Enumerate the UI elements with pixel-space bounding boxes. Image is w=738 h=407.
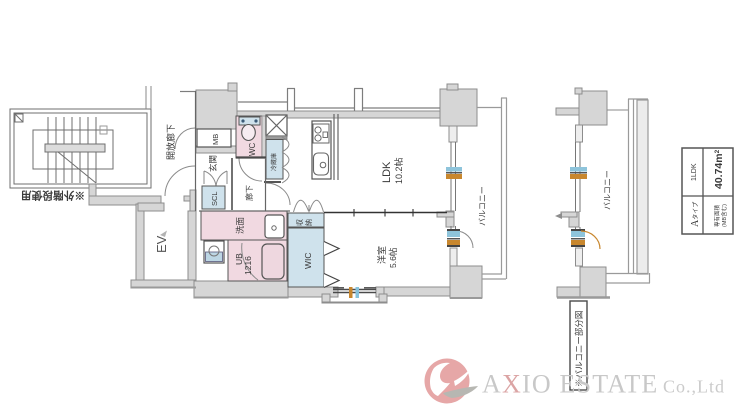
svg-text:1LDK: 1LDK bbox=[691, 163, 698, 181]
svg-text:洗面: 洗面 bbox=[235, 216, 245, 234]
svg-text:専有面積: 専有面積 bbox=[713, 204, 721, 227]
svg-text:※外階段使用: ※外階段使用 bbox=[21, 189, 85, 202]
svg-text:EV: EV bbox=[154, 235, 169, 253]
svg-text:WIC: WIC bbox=[303, 252, 313, 269]
svg-text:LDK: LDK bbox=[381, 161, 393, 183]
svg-text:40.74m2: 40.74m2 bbox=[713, 149, 725, 189]
svg-text:1216: 1216 bbox=[243, 256, 253, 275]
svg-text:10.2帖: 10.2帖 bbox=[393, 157, 404, 184]
svg-text:廊下: 廊下 bbox=[244, 185, 254, 201]
svg-text:MB: MB bbox=[211, 134, 220, 145]
svg-text:WC: WC bbox=[248, 142, 257, 156]
svg-text:(MB含む): (MB含む) bbox=[720, 204, 728, 227]
svg-text:AXIO ESTATE: AXIO ESTATE bbox=[482, 370, 659, 399]
svg-text:冷蔵庫: 冷蔵庫 bbox=[270, 153, 278, 171]
svg-text:開放廊下: 開放廊下 bbox=[165, 124, 176, 160]
svg-text:玄関: 玄関 bbox=[208, 155, 218, 172]
svg-text:収: 収 bbox=[296, 219, 304, 226]
svg-text:SCL: SCL bbox=[210, 191, 219, 206]
svg-text:洋室: 洋室 bbox=[376, 246, 387, 264]
svg-text:バルコニー: バルコニー bbox=[478, 186, 487, 226]
svg-text:納: 納 bbox=[304, 219, 313, 226]
svg-text:バルコニー: バルコニー bbox=[603, 170, 612, 210]
svg-text:5.6帖: 5.6帖 bbox=[388, 247, 398, 268]
svg-text:Co.,Ltd: Co.,Ltd bbox=[663, 377, 725, 397]
